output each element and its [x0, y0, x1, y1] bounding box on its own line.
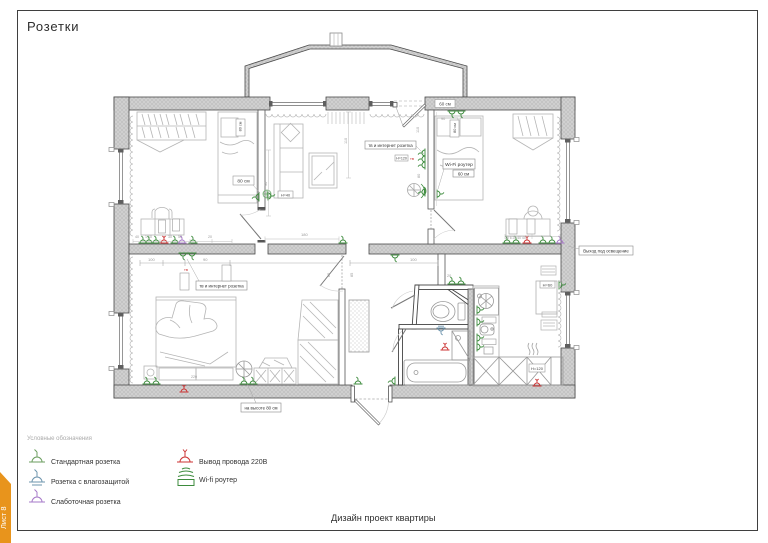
svg-text:90: 90	[203, 257, 208, 262]
svg-text:тв: тв	[410, 156, 414, 161]
svg-text:80 см: 80 см	[239, 121, 243, 131]
svg-text:85: 85	[350, 273, 354, 277]
svg-text:Н=40: Н=40	[281, 193, 290, 197]
svg-text:тв и интернет розетка: тв и интернет розетка	[199, 284, 244, 289]
svg-text:30: 30	[168, 235, 172, 239]
svg-text:Вывод провода 220В: Вывод провода 220В	[199, 459, 268, 466]
svg-text:Дизайн проект квартиры: Дизайн проект квартиры	[331, 513, 436, 523]
svg-text:60 см: 60 см	[458, 172, 469, 177]
svg-text:110: 110	[416, 127, 420, 133]
svg-text:Слаботочная розетка: Слаботочная розетка	[51, 498, 121, 506]
svg-text:Условные обозначения: Условные обозначения	[27, 436, 92, 442]
svg-text:Розетка с влагозащитой: Розетка с влагозащитой	[51, 478, 129, 486]
svg-text:85: 85	[327, 273, 331, 277]
svg-text:60 см: 60 см	[439, 102, 451, 107]
svg-text:80: 80	[417, 174, 421, 178]
svg-text:Лист 8: Лист 8	[0, 506, 8, 529]
svg-text:90: 90	[441, 117, 445, 121]
svg-text:Н=60: Н=60	[543, 282, 553, 287]
svg-text:Стандартная розетка: Стандартная розетка	[51, 459, 120, 466]
svg-text:40: 40	[135, 235, 139, 239]
svg-text:тв: тв	[184, 267, 188, 272]
svg-text:110: 110	[344, 138, 348, 144]
svg-text:220: 220	[191, 375, 197, 379]
svg-text:180: 180	[301, 232, 308, 237]
svg-text:80 см: 80 см	[453, 123, 457, 133]
svg-text:100: 100	[148, 257, 155, 262]
svg-text:Н=120: Н=120	[531, 366, 544, 371]
svg-text:Wi-Fi роутер: Wi-Fi роутер	[445, 162, 473, 168]
svg-text:20: 20	[447, 274, 451, 278]
svg-text:Выход под освещение: Выход под освещение	[583, 249, 629, 254]
svg-text:Wi-fi роутер: Wi-fi роутер	[199, 477, 237, 484]
svg-text:20: 20	[208, 235, 212, 239]
svg-text:тв и интернет розетка: тв и интернет розетка	[368, 143, 413, 148]
svg-text:Н=120: Н=120	[396, 157, 407, 161]
svg-text:90: 90	[264, 182, 268, 186]
svg-text:100: 100	[410, 257, 417, 262]
svg-text:Розетки: Розетки	[27, 19, 79, 34]
svg-text:на высоте 80 см: на высоте 80 см	[244, 406, 277, 411]
svg-text:80 см: 80 см	[237, 179, 249, 185]
